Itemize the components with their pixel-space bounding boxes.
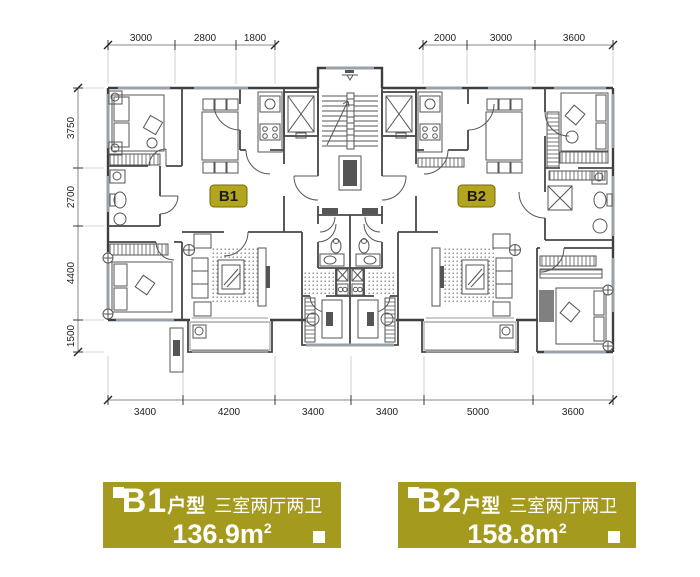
counter	[418, 92, 442, 152]
area-value: 136.9m2	[103, 521, 341, 548]
dimension-chain-bottom: 3400 4200 3400 3400 5000 3600	[104, 356, 617, 418]
b1-balcony	[193, 325, 206, 338]
tv	[440, 266, 444, 288]
area-value: 158.8m2	[398, 521, 636, 548]
wardrobe	[540, 256, 596, 266]
card-corner-square	[313, 531, 325, 543]
elevator-left	[284, 92, 318, 138]
bed	[112, 262, 172, 312]
unit-tag-b2-label: B2	[467, 188, 486, 205]
dim-label: 1800	[244, 33, 267, 44]
b2-bedroom-top	[547, 93, 608, 168]
unit-tag-b2: B2	[458, 185, 495, 207]
dining-table	[486, 112, 522, 160]
dim-label: 3000	[490, 33, 513, 44]
basin	[593, 219, 607, 233]
room-configuration: 三室两厅两卫	[509, 497, 617, 517]
toilet	[594, 192, 606, 208]
card-corner-square	[608, 531, 620, 543]
dining-table	[202, 112, 238, 160]
unit-card-b1: B1户型 三室两厅两卫 136.9m2	[103, 482, 341, 548]
area-exponent: 2	[559, 520, 567, 536]
ac-platform	[170, 328, 183, 372]
area-unit: m	[535, 519, 559, 549]
dim-label: 4400	[66, 261, 77, 284]
unit-tag-b1-label: B1	[219, 188, 238, 205]
elevator-right	[382, 92, 416, 138]
b2-bedroom-bottom	[539, 256, 613, 351]
b1-bedroom-top	[109, 91, 164, 165]
armchair	[493, 234, 510, 248]
bed	[561, 93, 608, 151]
sofa	[192, 258, 208, 298]
unit-name: B2	[417, 483, 462, 520]
dim-label: 3400	[134, 407, 157, 418]
basin	[324, 256, 336, 264]
entry-lobby	[322, 156, 378, 214]
b2-kitchen	[418, 92, 464, 167]
dim-label: 2000	[434, 33, 457, 44]
card-corner-square	[408, 487, 419, 498]
dim-label: 2800	[194, 33, 217, 44]
dim-label: 3400	[376, 407, 399, 418]
dim-label: 1500	[66, 324, 77, 347]
washer	[113, 172, 121, 180]
b2-dining	[486, 99, 522, 173]
dim-label: 5000	[467, 407, 490, 418]
dim-label: 3400	[302, 407, 325, 418]
dimension-chain-left: 3750 2700 4400 1500	[66, 84, 104, 356]
armchair	[194, 302, 211, 316]
dimension-chain-top-right: 2000 3000 3600	[419, 33, 617, 84]
b1-bathroom	[110, 170, 126, 225]
b1-kitchen	[258, 92, 282, 152]
armchair	[493, 302, 510, 316]
sink	[425, 99, 435, 109]
dimension-chain-top-left: 3000 2800 1800	[104, 33, 279, 84]
floor-plan-page: 3000 2800 1800 2000 3000 3600 3750 2700 …	[0, 0, 700, 577]
b2-bathroom	[548, 171, 612, 233]
dim-label: 4200	[218, 407, 241, 418]
area-number: 158.8	[467, 519, 535, 549]
bookshelf	[305, 298, 315, 342]
dresser	[110, 244, 168, 255]
room-configuration: 三室两厅两卫	[214, 497, 322, 517]
b1-dining	[202, 99, 238, 173]
unit-card-b2: B2户型 三室两厅两卫 158.8m2	[398, 482, 636, 548]
unit-name: B1	[122, 483, 167, 520]
sofa	[496, 258, 512, 298]
staircase	[322, 70, 378, 149]
dim-label: 2700	[66, 185, 77, 208]
toilet	[114, 192, 126, 208]
area-unit: m	[240, 519, 264, 549]
tv-cabinet	[432, 248, 440, 306]
toilet	[331, 239, 341, 253]
unit-type-suffix: 户型	[167, 497, 205, 518]
dresser	[560, 152, 608, 163]
counter	[258, 92, 282, 152]
wardrobe	[110, 154, 160, 165]
dresser	[539, 290, 554, 322]
b1-bedroom-bottom	[103, 244, 172, 319]
b2-balcony	[500, 325, 513, 338]
tv	[266, 266, 270, 288]
dim-label: 3000	[130, 33, 153, 44]
b2-living-room	[432, 234, 521, 316]
elevation-marker-icon	[342, 75, 358, 80]
toilet	[359, 239, 369, 253]
wardrobe	[547, 112, 559, 168]
b1-living-room	[184, 234, 271, 316]
basin	[114, 213, 126, 225]
unit-tag-b1: B1	[210, 185, 247, 207]
dim-label: 3600	[562, 407, 585, 418]
basin	[364, 256, 376, 264]
dim-label: 3600	[563, 33, 586, 44]
area-exponent: 2	[264, 520, 272, 536]
card-corner-square	[113, 487, 124, 498]
sink	[265, 99, 275, 109]
area-number: 136.9	[172, 519, 240, 549]
dim-label: 3750	[66, 116, 77, 139]
tv-cabinet	[258, 248, 266, 306]
unit-type-suffix: 户型	[462, 497, 500, 518]
bookshelf	[385, 298, 395, 342]
armchair	[194, 234, 211, 248]
